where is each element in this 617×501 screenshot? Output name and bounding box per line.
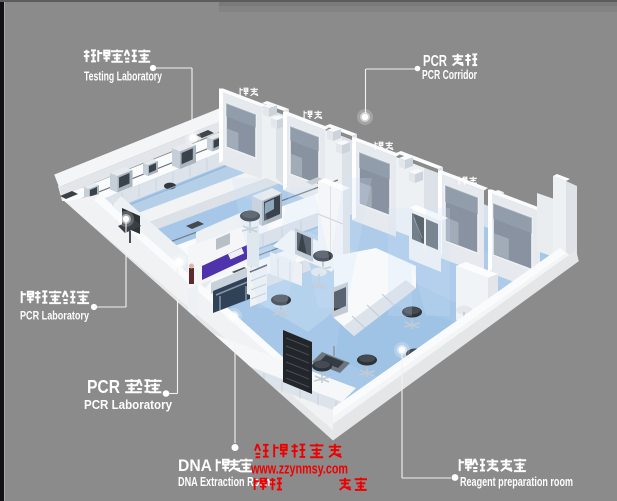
- svg-text:PCR Laboratory: PCR Laboratory: [84, 397, 173, 412]
- svg-text:PCR Corridor: PCR Corridor: [422, 68, 477, 82]
- svg-text:www.zzynmsy.com: www.zzynmsy.com: [250, 461, 348, 478]
- svg-text:PCR: PCR: [87, 377, 120, 397]
- svg-text:Reagent preparation room: Reagent preparation room: [460, 474, 573, 489]
- svg-text:DNA: DNA: [178, 456, 212, 475]
- svg-text:Testing Laboratory: Testing Laboratory: [84, 69, 163, 84]
- svg-text:PCR Laboratory: PCR Laboratory: [20, 309, 89, 323]
